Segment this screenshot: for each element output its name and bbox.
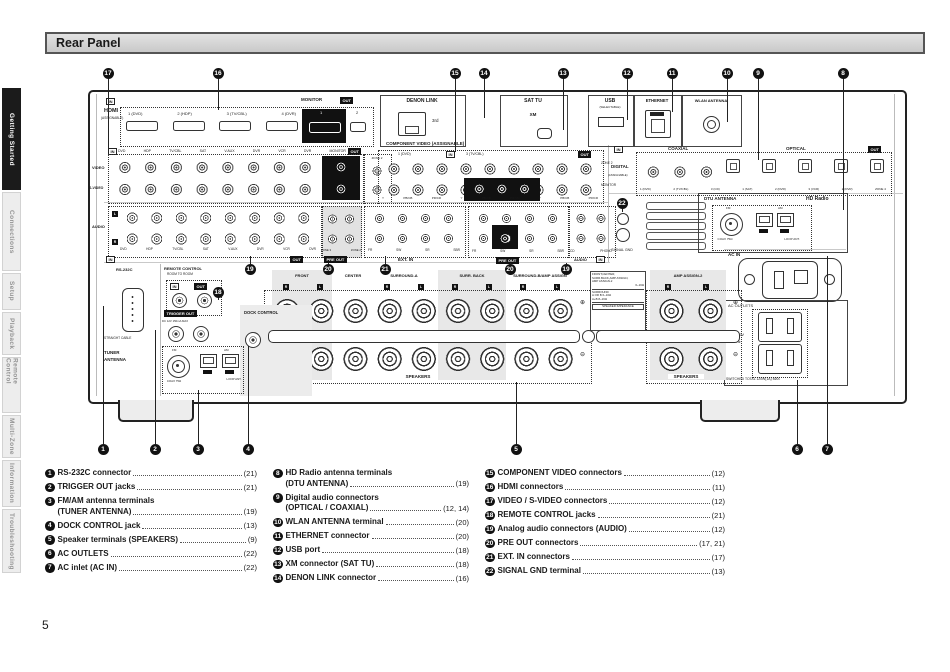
audio-label: AUDIO (92, 224, 105, 229)
ac-inlet-prong (794, 270, 808, 284)
preout-jacks-row (472, 209, 564, 228)
extin-jacks-row (368, 209, 460, 228)
signal-gnd-screw (616, 228, 630, 242)
dotted-leader (350, 486, 453, 487)
optical-port (726, 159, 740, 173)
legend-page-ref: (17) (712, 553, 725, 563)
col-label: SBR (453, 248, 460, 252)
hdmi-monitor-label: MONITOR (301, 97, 322, 102)
callout-19: 19 (245, 264, 256, 275)
legend-page-ref: (13) (244, 521, 257, 531)
zone-jacks-row (324, 230, 358, 248)
straight-cable-label: STRAIGHT CABLE (104, 336, 131, 340)
callout-20: 20 (323, 264, 334, 275)
legend-number: 12 (273, 546, 283, 556)
callout-line (218, 78, 219, 110)
impedance-line: A+B 8~16Ω (592, 298, 644, 302)
optical-label: OPTICAL (786, 146, 806, 151)
col-label: 2 (DVR) (775, 187, 786, 191)
legend-column: 8HD Radio antenna terminals(DTU ANTENNA)… (273, 468, 469, 587)
legend-item-12: 12USB port(18) (273, 545, 469, 556)
digital-label: DIGITAL (611, 164, 629, 169)
wlan-label: WLAN ANTENNA (682, 98, 740, 103)
impedance-title: SPEAKER IMPEDANCE (592, 304, 644, 310)
hdmi-monitor2-port (350, 122, 366, 132)
dotted-leader (572, 559, 710, 560)
dotted-leader (386, 524, 454, 525)
legend-number: 4 (45, 521, 55, 531)
trigger-jack (168, 326, 184, 342)
ac-outlet (758, 344, 802, 374)
minus-terminal-mark: ⊖ (733, 351, 738, 358)
component-jacks-row (382, 159, 598, 179)
speakers-label: SPEAKERS (400, 374, 436, 379)
hdmi-monitor2-num: 2 (356, 110, 358, 115)
legend-column: 1RS-232C connector(21)2TRIGGER OUT jacks… (45, 468, 257, 587)
component-label-1: 1 (DVD) (398, 152, 411, 156)
trigger-jack (193, 326, 209, 342)
legend-item-4: 4DOCK CONTROL jack(13) (45, 521, 257, 532)
dotted-leader (376, 566, 453, 567)
hdmi-port (266, 121, 298, 131)
col-label: SW (500, 249, 505, 253)
panel-edge-line (894, 94, 895, 396)
preout-tag: PRE OUT (496, 257, 519, 264)
ac-inlet-screw (744, 274, 755, 285)
col-label: TV/CBL (169, 149, 181, 153)
legend-item-22: 22SIGNAL GND terminal(13) (485, 566, 725, 577)
speaker-rail (596, 330, 740, 343)
video-monitor-jack (324, 157, 358, 177)
manual-page: Getting StartedConnectionsSetupPlaybackR… (0, 0, 950, 672)
callout-4: 4 (243, 444, 254, 455)
vent-slot (646, 242, 706, 250)
ethernet-inner (651, 119, 665, 133)
legend-item-6: 6AC OUTLETS(22) (45, 549, 257, 560)
ac-outlet (758, 312, 802, 342)
legend-number: 2 (45, 483, 55, 493)
legend-page-ref: (12) (712, 497, 725, 507)
col-label: 1 (DVD) (128, 111, 142, 116)
col-label: CD (570, 249, 575, 253)
wlan-antenna-jack-inner (707, 120, 716, 129)
preout-jacks-row (472, 229, 564, 248)
dtu-fm-label: FM (726, 206, 730, 210)
speaker-rail-screw (582, 330, 595, 343)
ac-outlet-slot (787, 350, 794, 366)
zone-col-labels: ZONE 3ZONE 2 (321, 248, 361, 252)
callout-19: 19 (561, 264, 572, 275)
legend-item-8: 8HD Radio antenna terminals(DTU ANTENNA)… (273, 468, 469, 489)
ethernet-label: ETHERNET (634, 98, 680, 103)
front-label: FRONT (282, 273, 322, 278)
am-slot (203, 370, 212, 374)
callout-line (622, 208, 623, 212)
panel-edge-line (96, 94, 97, 396)
dotted-leader (565, 489, 710, 490)
legend-label: HDMI connectors (498, 482, 564, 493)
legend-label: TRIGGER OUT jacks (58, 482, 136, 493)
hdmi-port (219, 121, 251, 131)
col-label: 4 (DVR) (282, 111, 296, 116)
impedance-line: 6~16Ω (592, 284, 644, 288)
denon-link-label: DENON LINK (380, 98, 464, 104)
legend-number: 21 (485, 553, 495, 563)
callout-line (516, 382, 517, 444)
dotted-leader (624, 475, 710, 476)
legend-column: 15COMPONENT VIDEO connectors(12)16HDMI c… (485, 468, 725, 587)
dotted-leader (370, 510, 441, 511)
col-label: SR (529, 249, 533, 253)
dotted-leader (629, 531, 710, 532)
callout-8: 8 (838, 68, 849, 79)
fm-coax-pin (176, 364, 179, 367)
coaxial-jacks (640, 156, 720, 188)
hdmi-port (173, 121, 205, 131)
fm-label: FM (172, 348, 176, 352)
audio-col-labels: DVDHDPTV/CBLSATV.AUXDVRVCRDVR (120, 247, 316, 251)
remote-control-label: REMOTE CONTROL (164, 266, 202, 271)
col-label: 3 (VCR) (808, 187, 819, 191)
legend-number: 14 (273, 574, 283, 584)
cd-phono-labels: CDPHONO (570, 249, 612, 253)
dtu-am-slot (780, 229, 789, 233)
hdmi-port (126, 121, 158, 131)
col-label: 1 (DVD) (640, 187, 651, 191)
col-label: VCR (283, 247, 290, 251)
legend-item-1: 1RS-232C connector(21) (45, 468, 257, 479)
optical-port (798, 159, 812, 173)
col-label: DVD (120, 247, 127, 251)
panel-seam (104, 262, 610, 263)
speaker-posts-row2 (652, 343, 730, 375)
trigger-spec-label: DC 12V 150mA MAX (162, 319, 188, 323)
extin-col-labels: FRSWSRSBR (368, 248, 460, 252)
ethernet-pins (650, 112, 664, 116)
audio-in-tag: IN (106, 256, 115, 263)
audio-in-label: AUDIO (574, 257, 587, 262)
callout-15: 15 (450, 68, 461, 79)
legend-label: ETHERNET connector (286, 531, 370, 542)
callout-line (563, 78, 564, 130)
legend-page-ref: (20) (456, 518, 469, 528)
legend-item-16: 16HDMI connectors(11) (485, 482, 725, 493)
callout-14: 14 (479, 68, 490, 79)
col-label: HDP (146, 247, 153, 251)
svideo-row-label: S-VIDEO (89, 186, 105, 190)
denon-link-jack-notch (405, 126, 419, 134)
col-label: DVR (253, 149, 260, 153)
hdmi-ports (126, 121, 298, 131)
callout-17: 17 (103, 68, 114, 79)
sidebar-tab-troubleshooting: Troubleshooting (2, 509, 21, 573)
legend-page-ref: (18) (456, 560, 469, 570)
callout-line (248, 346, 249, 444)
col-label: V.AUX (224, 149, 234, 153)
legend-label: REMOTE CONTROL jacks (498, 510, 596, 521)
col-label: SR (425, 248, 429, 252)
ac-inlet-socket (762, 261, 818, 299)
page-title-text: Rear Panel (56, 36, 121, 50)
dotted-leader (111, 556, 242, 557)
callout-line (103, 306, 104, 444)
legend-number: 17 (485, 497, 495, 507)
col-label: MONITOR (329, 149, 345, 153)
callout-5: 5 (511, 444, 522, 455)
callout-18: 18 (213, 287, 224, 298)
legend-item-10: 10WLAN ANTENNA terminal(20) (273, 517, 469, 528)
remote-out-jack (197, 293, 212, 308)
legend-page-ref: (12) (712, 469, 725, 479)
callout-line (250, 256, 251, 264)
legend-label: DENON LINK connector (286, 573, 377, 584)
dotted-leader (137, 489, 241, 490)
legend-item-13: 13XM connector (SAT TU)(18) (273, 559, 469, 570)
legend-page-ref: (9) (248, 535, 257, 545)
legend-page-ref: (13) (712, 567, 725, 577)
room-to-room-label: ROOM TO ROOM (167, 272, 193, 276)
page-number: 5 (42, 618, 49, 632)
legend-label: (TUNER ANTENNA) (58, 507, 132, 518)
legend-page-ref: (16) (456, 574, 469, 584)
preout-col-labels: FRSWSRSBR (472, 249, 564, 253)
am-clip-inner (203, 357, 214, 364)
legend-number: 11 (273, 532, 283, 542)
legend-item-21: 21EXT. IN connectors(17) (485, 552, 725, 563)
legend-label: VIDEO / S-VIDEO connectors (498, 496, 608, 507)
speaker-posts-row (270, 295, 578, 327)
dotted-leader (322, 552, 453, 553)
legend-label: DOCK CONTROL jack (58, 521, 141, 532)
col-label: PB/CB (403, 196, 412, 200)
dotted-leader (609, 503, 709, 504)
optical-port (870, 159, 884, 173)
legend-number: 10 (273, 518, 283, 528)
col-label: ZONE 3 (321, 248, 331, 252)
callout-6: 6 (792, 444, 803, 455)
coaxial-label: COAXIAL (668, 146, 688, 151)
ac-inlet-prong (774, 271, 784, 289)
hdmi-port-labels: 1 (DVD)2 (HDP)3 (TV/CBL)4 (DVR) (128, 111, 296, 116)
dotted-leader (598, 517, 710, 518)
ac-in-label: AC IN (728, 252, 740, 257)
usb-selectable-label: (SELECTABLE) (588, 105, 632, 109)
legend-number: 5 (45, 535, 55, 545)
col-label: 3 (TV/CBL) (227, 111, 247, 116)
component-out-tag: OUT (578, 151, 591, 158)
legend-label: PRE OUT connectors (498, 538, 579, 549)
panel-seam (160, 264, 161, 396)
denon-link-3rd: 3rd (432, 118, 439, 123)
col-label: Y (382, 196, 384, 200)
audio-in-tag2: IN (596, 256, 605, 263)
digital-assignable-label: (ASSIGNABLE) (608, 173, 628, 177)
preout-sw-jack (494, 229, 516, 248)
remote-in-jack (172, 293, 187, 308)
legend-label: Speaker terminals (SPEAKERS) (58, 535, 179, 546)
dotted-leader (180, 542, 246, 543)
am-clip-inner (225, 357, 236, 364)
usb-label: USB (588, 98, 632, 104)
sidebar: Getting StartedConnectionsSetupPlaybackR… (2, 88, 21, 573)
optical-port (834, 159, 848, 173)
legend-page-ref: (20) (456, 532, 469, 542)
col-label: PR/CR (589, 196, 598, 200)
audio-jacks-row-r (120, 229, 316, 249)
col-label: Y (460, 196, 462, 200)
usb-port (598, 117, 624, 127)
callout-line (758, 78, 759, 160)
dtu-coax-label: COAX 75Ω (713, 238, 737, 242)
callout-20: 20 (505, 264, 516, 275)
amp-assign2-label: AMP ASSIGN-2 (656, 273, 720, 278)
legend-page-ref: (22) (244, 563, 257, 573)
digital-in-tag: IN (614, 146, 623, 153)
legend-label: (OPTICAL / COAXIAL) (286, 503, 369, 514)
col-label: PR/CR (432, 196, 441, 200)
component-label-3: 3 (TV/CBL) (466, 152, 484, 156)
col-label: SAT (200, 149, 207, 153)
legend-item-19: 19Analog audio connectors (AUDIO)(12) (485, 524, 725, 535)
col-label: FR (472, 249, 476, 253)
sidebar-tab-connections: Connections (2, 192, 21, 271)
rs232c-pins (129, 294, 136, 324)
antenna-label: ANTENNA (104, 357, 126, 362)
video-col-labels: DVDHDPTV/CBLSATV.AUXDVRVCRDVRMONITOR (118, 149, 346, 153)
hdmi-monitor1-num: 1 (320, 110, 322, 115)
center-label: CENTER (333, 273, 373, 278)
col-label: HDP (144, 149, 151, 153)
dotted-leader (378, 580, 453, 581)
legend-label: (DTU ANTENNA) (286, 479, 349, 490)
legend-item-20: 20PRE OUT connectors(17, 21) (485, 538, 725, 549)
legend-number: 15 (485, 469, 495, 479)
legend-item-14: 14DENON LINK connector(16) (273, 573, 469, 584)
sidebar-tab-multi-zone: Multi-Zone (2, 415, 21, 458)
callout-10: 10 (722, 68, 733, 79)
sidebar-tab-setup: Setup (2, 273, 21, 310)
dotted-leader (580, 545, 697, 546)
callout-line (455, 78, 456, 152)
xm-connector (537, 128, 552, 139)
callout-line (385, 256, 386, 264)
legend-number: 18 (485, 511, 495, 521)
chassis-foot (118, 400, 194, 422)
loop-ant-label: LOOP ANT. (222, 378, 246, 381)
callout-line (843, 78, 844, 210)
callout-1: 1 (98, 444, 109, 455)
legend-label: WLAN ANTENNA terminal (286, 517, 384, 528)
chassis-foot (700, 400, 780, 422)
callout-9: 9 (753, 68, 764, 79)
dtu-antenna-label: DTU ANTENNA (704, 196, 736, 201)
dtu-am-slot (759, 229, 768, 233)
legend-number: 8 (273, 469, 283, 479)
vent-slot (646, 202, 706, 210)
minus-terminal-mark: ⊖ (580, 351, 585, 358)
remote-in-tag: IN (170, 283, 179, 290)
callout-11: 11 (667, 68, 678, 79)
col-label: TV/CBL (172, 247, 183, 251)
col-label: ZONE 2 (351, 248, 361, 252)
optical-jacks (726, 159, 884, 173)
dotted-leader (133, 514, 241, 515)
legend-number: 3 (45, 497, 55, 507)
ac-outlet-slot (766, 318, 773, 334)
col-label: 2 (TV/CBL) (673, 187, 688, 191)
svideo-monitor-jack (324, 179, 358, 199)
extin-label: EXT. IN (398, 257, 413, 262)
legend-item-5: 5Speaker terminals (SPEAKERS)(9) (45, 535, 257, 546)
video-row-label: VIDEO (92, 165, 104, 170)
zone-preout-tag: PRE OUT (324, 256, 347, 263)
remote-out-tag: OUT (194, 283, 207, 290)
callout-21: 21 (380, 264, 391, 275)
callout-line (484, 78, 485, 118)
dock-control-label: DOCK CONTROL (244, 310, 278, 315)
legend-page-ref: (17, 21) (699, 539, 725, 549)
legend-label: HD Radio antenna terminals (286, 468, 470, 479)
legend-page-ref: (22) (244, 549, 257, 559)
coax75-label: COAX 75Ω (162, 380, 186, 383)
legend-item-18: 18REMOTE CONTROL jacks(21) (485, 510, 725, 521)
dotted-leader (119, 570, 242, 571)
sidebar-tab-playback: Playback (2, 312, 21, 355)
vent-slot (646, 232, 706, 240)
svideo-jacks-row (112, 179, 318, 200)
cd-phono-jacks-row (571, 229, 611, 248)
legend-page-ref: (21) (712, 511, 725, 521)
legend-number: 6 (45, 549, 55, 559)
legend-label: AC OUTLETS (58, 549, 109, 560)
callout-7: 7 (822, 444, 833, 455)
sidebar-tab-remote-control: Remote Control (2, 357, 21, 413)
ac-outlet-slot (787, 318, 794, 334)
zone-jacks-row (324, 210, 358, 228)
ac-outlet-slot (766, 350, 773, 366)
dotted-leader (583, 573, 710, 574)
sat-tu-label: SAT TU (500, 98, 566, 104)
legend-item-2: 2TRIGGER OUT jacks(21) (45, 482, 257, 493)
callout-22: 22 (617, 198, 628, 209)
legend-number: 7 (45, 563, 55, 573)
surr-back-label: SURR. BACK (448, 273, 496, 278)
legend-item-17: 17VIDEO / S-VIDEO connectors(12) (485, 496, 725, 507)
hdmi-out-tag: OUT (340, 97, 353, 104)
speaker-posts-row2 (652, 295, 730, 327)
signal-gnd-screw (617, 213, 629, 225)
legend: 1RS-232C connector(21)2TRIGGER OUT jacks… (45, 468, 725, 587)
speakers-label: SPEAKERS (668, 374, 704, 379)
callout-3: 3 (193, 444, 204, 455)
legend-label: FM/AM antenna terminals (58, 496, 258, 507)
legend-item-7: 7AC inlet (AC IN)(22) (45, 563, 257, 574)
col-label: V.AUX (228, 247, 237, 251)
legend-number: 20 (485, 539, 495, 549)
component-axis-labels: YPB/CBPR/CRYPB/CBPR/CRYPB/CBPR/CR (382, 196, 598, 200)
callout-16: 16 (213, 68, 224, 79)
legend-label: Digital audio connectors (286, 493, 470, 504)
legend-number: 16 (485, 483, 495, 493)
legend-label: AC inlet (AC IN) (58, 563, 118, 574)
legend-item-9: 9Digital audio connectors(OPTICAL / COAX… (273, 493, 469, 514)
component-in-tag: IN (446, 151, 455, 158)
tuner-label: TUNER (104, 350, 120, 355)
callout-line (155, 330, 156, 444)
callout-12: 12 (622, 68, 633, 79)
callout-2: 2 (150, 444, 161, 455)
callout-line (727, 78, 728, 122)
